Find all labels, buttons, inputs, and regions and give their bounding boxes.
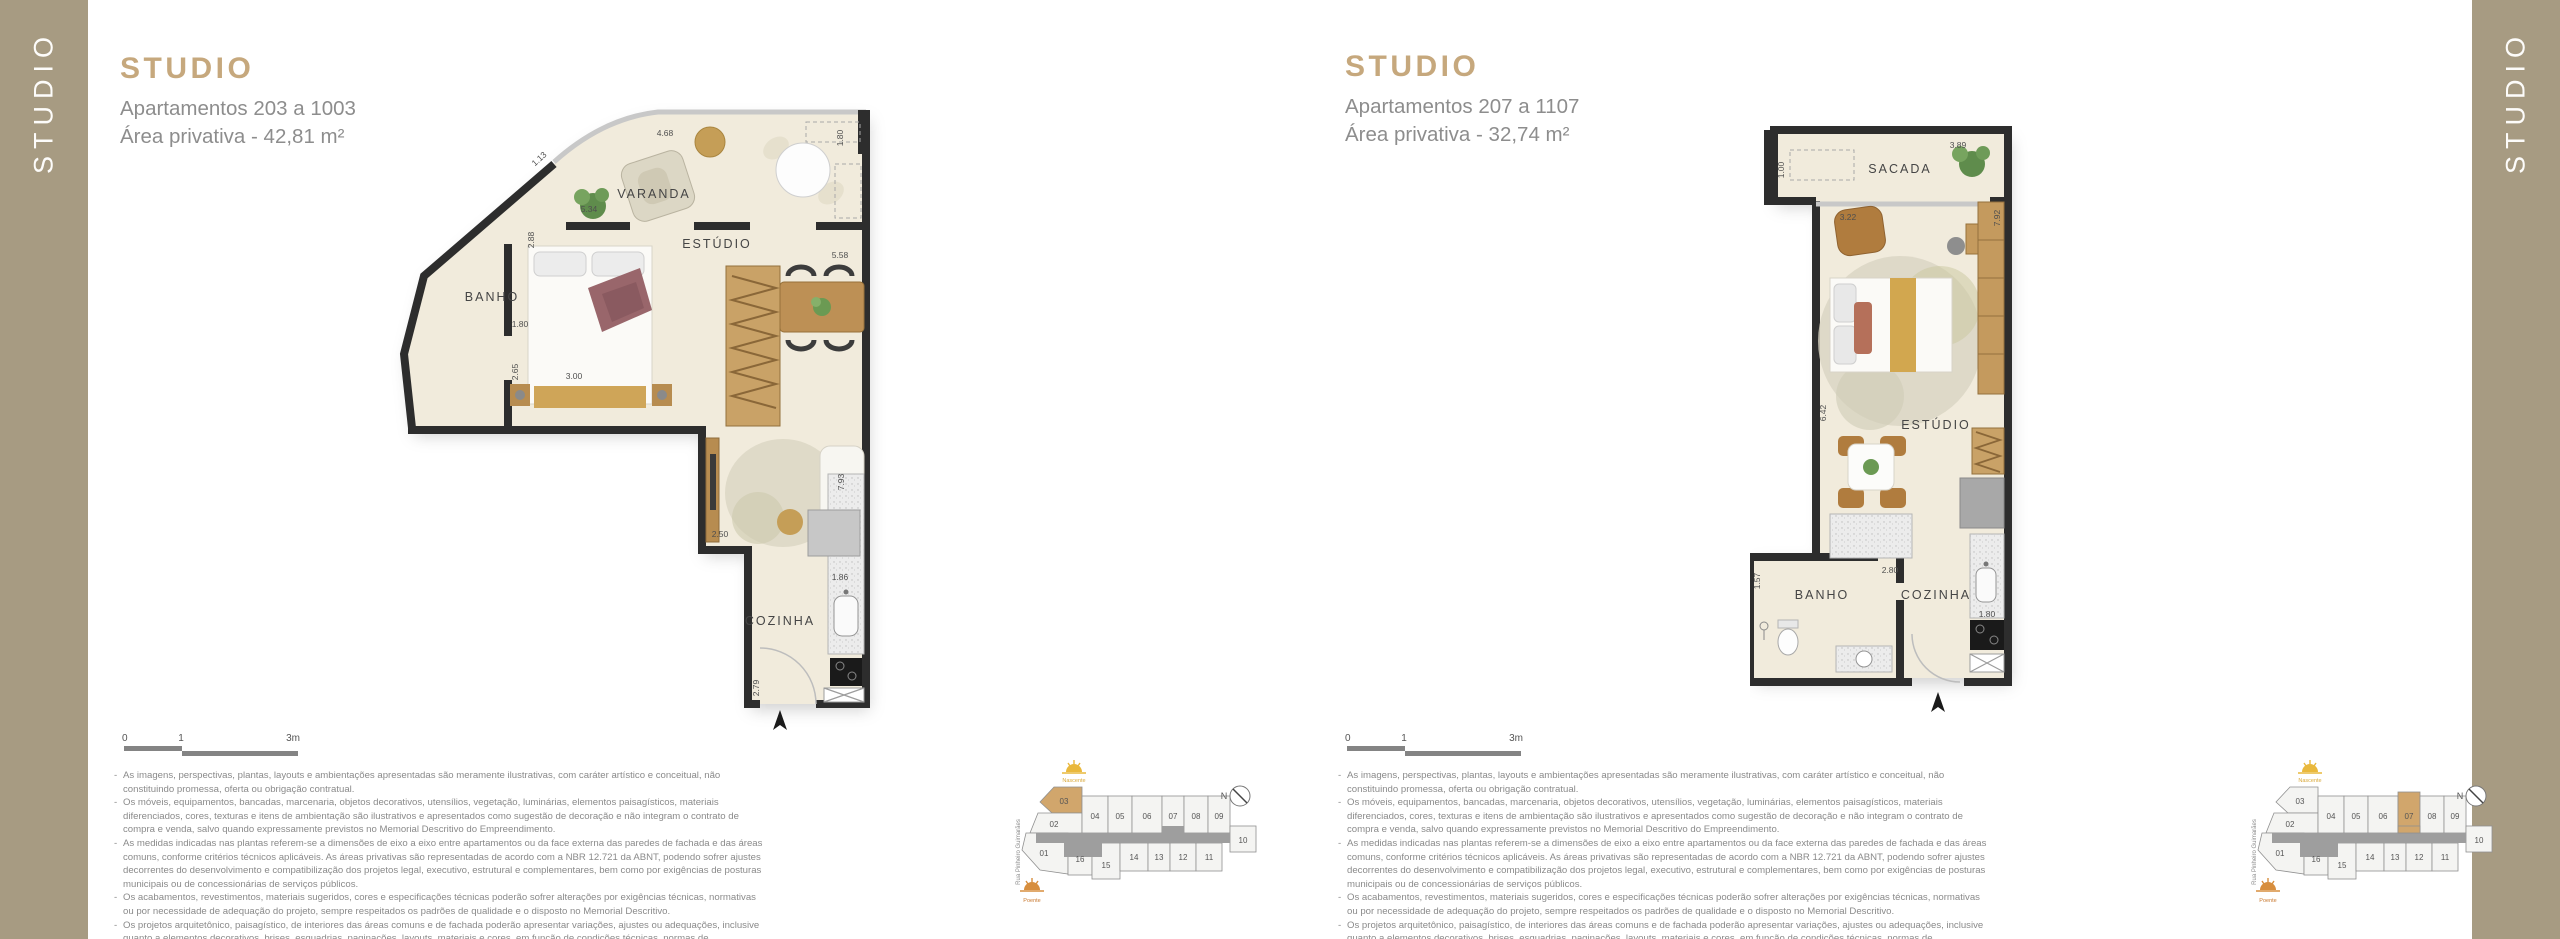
keyplan-unit-12: 12	[1179, 853, 1188, 862]
dimension-label: 4.68	[657, 128, 674, 138]
keyplan-unit-13: 13	[1155, 853, 1164, 862]
keyplan-unit-07: 07	[1169, 812, 1178, 821]
sunset-label: Poente	[1023, 898, 1040, 904]
right-private-area: Área privativa - 32,74 m²	[1345, 123, 1569, 146]
keyplan-unit-16: 16	[1076, 855, 1085, 864]
bed	[510, 246, 672, 408]
keyplan-unit-02: 02	[2286, 820, 2295, 829]
keyplan-unit-04: 04	[1091, 812, 1100, 821]
room-label-banho: BANHO	[465, 290, 519, 304]
keyplan-unit-05: 05	[2352, 812, 2361, 821]
scale-end: 3m	[1509, 733, 1523, 744]
keyplan-unit-09: 09	[1215, 812, 1224, 821]
dimension-label: 1.80	[1979, 609, 1996, 619]
dimension-label: 5.34	[581, 204, 598, 214]
keyplan-unit-03: 03	[1060, 797, 1069, 806]
disclaimer-item: Os projetos arquitetônico, paisagístico,…	[1338, 919, 1990, 939]
keyplan-unit-13: 13	[2391, 853, 2400, 862]
dimension-label: 1.80	[835, 129, 845, 146]
dimension-label: 1.86	[832, 572, 849, 582]
scale-mid: 1	[178, 733, 184, 744]
keyplan-unit-01: 01	[2276, 849, 2285, 858]
scale-start: 0	[1345, 733, 1351, 744]
dimension-label: 1.57	[1752, 572, 1762, 589]
keyplan-unit-08: 08	[2428, 812, 2437, 821]
keyplan-unit-11: 11	[2441, 853, 2450, 862]
keyplan-unit-02: 02	[1050, 820, 1059, 829]
keyplan-unit-10: 10	[2475, 836, 2484, 845]
dimension-label: 1.13	[529, 149, 548, 168]
key-plan-left: Rua Pinheiro Guimarães Nascente	[1012, 756, 1262, 921]
scale-segment	[1347, 746, 1405, 751]
keyplan-unit-15: 15	[1102, 861, 1111, 870]
scale-bar-right: 0 1 3m	[1345, 733, 1523, 759]
dimension-label: 3.89	[1950, 140, 1967, 150]
keyplan-unit-05: 05	[1116, 812, 1125, 821]
floor-plan-left: VARANDA ESTÚDIO BANHO COZINHA 4.68 1.80 …	[388, 98, 888, 748]
right-apartments: Apartamentos 207 a 1107	[1345, 95, 1579, 118]
scale-start: 0	[122, 733, 128, 744]
keyplan-unit-14: 14	[1130, 853, 1139, 862]
scale-segment	[1405, 751, 1521, 756]
room-label-varanda: VARANDA	[617, 187, 691, 201]
disclaimer-item: As imagens, perspectivas, plantas, layou…	[114, 769, 766, 796]
sunrise-label: Nascente	[1062, 778, 1085, 784]
disclaimer-item: Os móveis, equipamentos, bancadas, marce…	[1338, 796, 1990, 837]
dimension-label: 2.80	[1882, 565, 1899, 575]
wardrobe	[726, 266, 780, 426]
north-label: N	[1221, 791, 1228, 801]
street-label: Rua Pinheiro Guimarães	[2252, 819, 2258, 885]
disclaimer-item: Os projetos arquitetônico, paisagístico,…	[114, 919, 766, 939]
key-plan-right: Rua Pinheiro Guimarães Nascente	[2248, 756, 2498, 921]
street-label: Rua Pinheiro Guimarães	[1016, 819, 1022, 885]
left-rail-label: STUDIO	[29, 30, 60, 174]
keyplan-unit-06: 06	[1143, 812, 1152, 821]
dimension-label: 3.22	[1840, 212, 1857, 222]
floor-plan-right: SACADA ESTÚDIO BANHO COZINHA 3.89 1.00 3…	[1750, 106, 2080, 721]
legal-disclaimer-right: As imagens, perspectivas, plantas, layou…	[1338, 769, 1990, 939]
dimension-label: 1.00	[1776, 161, 1786, 178]
left-rail: STUDIO	[0, 0, 88, 939]
right-title: STUDIO	[1345, 50, 1905, 84]
north-arrow-icon	[1931, 692, 1945, 712]
dimension-label: 2.65	[510, 363, 520, 380]
room-label-cozinha: COZINHA	[745, 614, 815, 628]
dimension-label: 2.88	[526, 231, 536, 248]
right-rail-label: STUDIO	[2501, 30, 2532, 174]
scale-segment	[182, 751, 298, 756]
dimension-label: 5.58	[832, 250, 849, 260]
dimension-label: 2.50	[712, 529, 729, 539]
disclaimer-item: As medidas indicadas nas plantas referem…	[1338, 837, 1990, 891]
keyplan-unit-07: 07	[2405, 812, 2414, 821]
keyplan-unit-15: 15	[2338, 861, 2347, 870]
dimension-label: 7.92	[1992, 209, 2002, 226]
disclaimer-item: As medidas indicadas nas plantas referem…	[114, 837, 766, 891]
sunrise-icon	[2298, 760, 2322, 773]
north-label: N	[2457, 791, 2464, 801]
keyplan-unit-04: 04	[2327, 812, 2336, 821]
sunrise-icon	[1062, 760, 1086, 773]
keyplan-unit-10: 10	[1239, 836, 1248, 845]
keyplan-unit-16: 16	[2312, 855, 2321, 864]
room-label-banho: BANHO	[1795, 588, 1849, 602]
disclaimer-item: Os acabamentos, revestimentos, materiais…	[114, 891, 766, 918]
keyplan-unit-12: 12	[2415, 853, 2424, 862]
disclaimer-item: Os móveis, equipamentos, bancadas, marce…	[114, 796, 766, 837]
left-private-area: Área privativa - 42,81 m²	[120, 125, 344, 148]
room-label-estudio: ESTÚDIO	[1901, 417, 1971, 432]
legal-disclaimer-left: As imagens, perspectivas, plantas, layou…	[114, 769, 766, 939]
dimension-label: 6.42	[1818, 404, 1828, 421]
disclaimer-item: Os acabamentos, revestimentos, materiais…	[1338, 891, 1990, 918]
dimension-label: 3.00	[566, 371, 583, 381]
room-label-cozinha: COZINHA	[1901, 588, 1971, 602]
keyplan-unit-14: 14	[2366, 853, 2375, 862]
scale-bar-left: 0 1 3m	[122, 733, 300, 759]
keyplan-unit-11: 11	[1205, 853, 1214, 862]
scale-end: 3m	[286, 733, 300, 744]
left-apartments: Apartamentos 203 a 1003	[120, 97, 356, 120]
brochure-page: STUDIO STUDIO STUDIO Apartamentos 203 a …	[0, 0, 2560, 939]
keyplan-unit-03: 03	[2296, 797, 2305, 806]
dimension-label: 1.80	[512, 319, 529, 329]
dimension-label: 2.79	[751, 679, 761, 696]
scale-mid: 1	[1401, 733, 1407, 744]
keyplan-unit-08: 08	[1192, 812, 1201, 821]
scale-segment	[124, 746, 182, 751]
sunrise-label: Nascente	[2298, 778, 2321, 784]
keyplan-unit-06: 06	[2379, 812, 2388, 821]
room-label-sacada: SACADA	[1868, 162, 1931, 176]
sunset-icon	[2256, 878, 2280, 891]
keyplan-unit-09: 09	[2451, 812, 2460, 821]
left-title: STUDIO	[120, 52, 680, 86]
disclaimer-item: As imagens, perspectivas, plantas, layou…	[1338, 769, 1990, 796]
dimension-label: 7.93	[836, 473, 846, 490]
sunset-icon	[1020, 878, 1044, 891]
sunset-label: Poente	[2259, 898, 2276, 904]
room-label-estudio: ESTÚDIO	[682, 236, 752, 251]
keyplan-unit-01: 01	[1040, 849, 1049, 858]
north-arrow-icon	[773, 710, 787, 730]
